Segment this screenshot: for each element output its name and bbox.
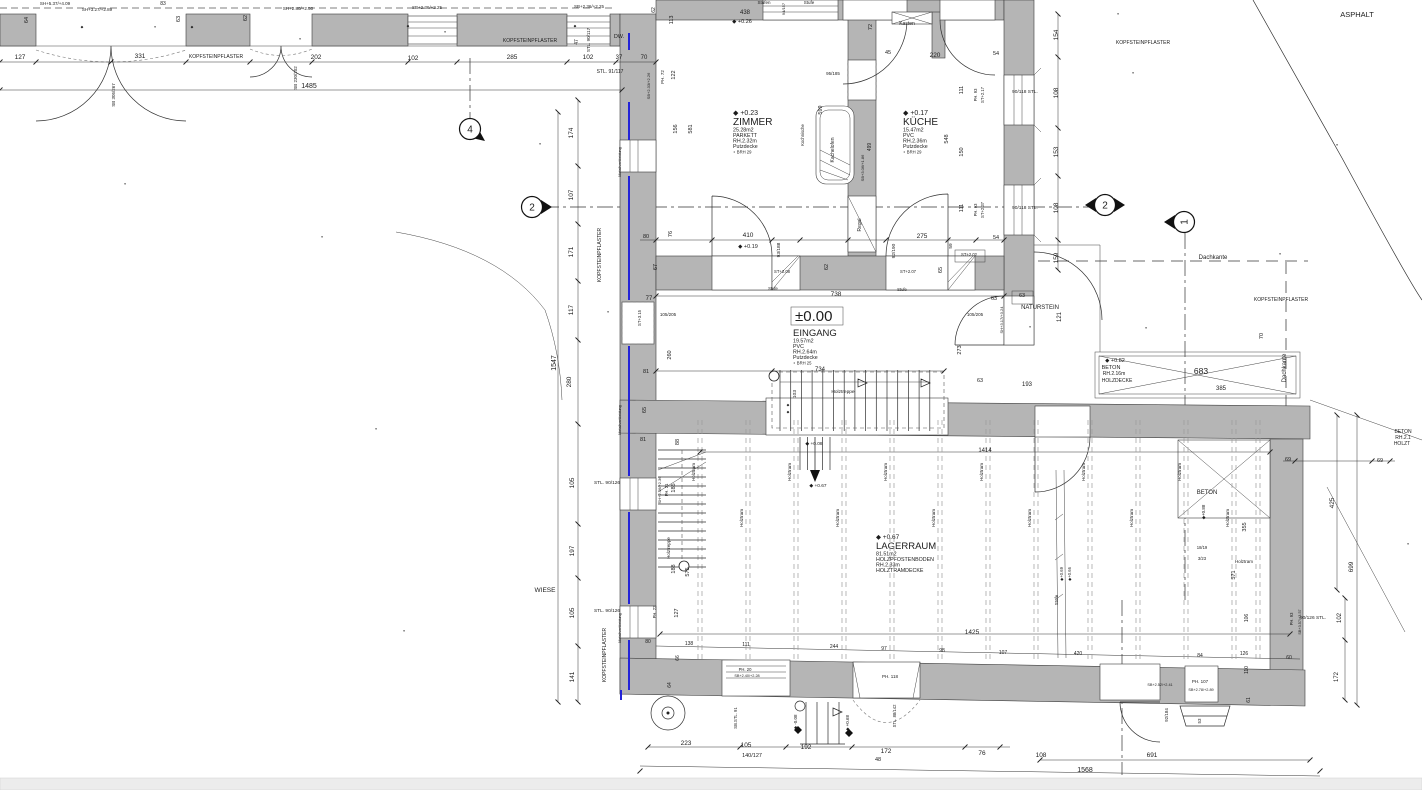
dim-label: 65	[938, 267, 944, 273]
dim-label: Stufe	[768, 286, 778, 291]
dim-label: NATURSTEIN	[1021, 305, 1059, 311]
dim-label: 47	[574, 39, 580, 45]
dim-label: ◆+0.66	[1067, 566, 1072, 580]
dim-label: 111	[959, 86, 965, 94]
holztram-beams: HolztramHolztramHolztramHolztramHolztram…	[691, 420, 1260, 662]
dim-label: 1414	[978, 448, 992, 454]
holztram-label: Holztram	[1177, 463, 1182, 481]
dim-label: PH. 72	[660, 70, 665, 84]
holztram-label: Holztram	[883, 463, 888, 481]
dim-label: ∘	[443, 29, 446, 35]
dim-label: 69	[1377, 458, 1383, 464]
dim-label: ◆ +0.26	[732, 19, 752, 25]
dim-label: 59	[948, 243, 954, 249]
dim-label: 581	[688, 124, 694, 133]
dim-label: 108	[1036, 752, 1047, 759]
lagerraum-level: ◆ +0.67	[876, 534, 900, 541]
dim-label: 92/190	[891, 243, 897, 258]
dim-label: 60	[1286, 655, 1292, 661]
dim-label: 83	[160, 1, 166, 7]
dim-label: 355	[1242, 522, 1248, 531]
dim-label: ∘	[1131, 70, 1134, 76]
dim-label: 122	[671, 70, 677, 79]
dim-label: 105	[569, 607, 576, 618]
dim-label: 599	[818, 105, 824, 114]
dim-label: KOPFSTEINPFLASTER	[602, 628, 608, 683]
dim-label: 159	[1053, 252, 1060, 263]
svg-text:HOLZTRAMDECKE: HOLZTRAMDECKE	[876, 568, 924, 574]
dim-label: 48	[875, 757, 881, 763]
dim-label: 111	[742, 642, 750, 648]
dim-label: 105/205	[967, 312, 984, 317]
eingang-title: EINGANG	[793, 328, 837, 339]
dim-label: SB 230/202	[293, 66, 298, 90]
dim-label: Kachelofen	[830, 137, 836, 162]
dim-label: 54	[993, 51, 999, 57]
dim-label: 1568	[1077, 767, 1093, 774]
dim-label: 1485	[301, 83, 317, 90]
dim-label: DW.	[614, 34, 625, 40]
holztram-label: Holztram	[979, 463, 984, 481]
dim-label: 105	[569, 477, 576, 488]
dim-label: KOPFSTEINPFLASTER	[597, 228, 603, 283]
dim-label: ◆	[81, 25, 85, 29]
dim-label: 102	[583, 54, 594, 61]
dim-label: STL. 91/117	[597, 69, 624, 75]
dim-label: 140/127	[742, 753, 762, 759]
floorplan-drawing: ◆ +0.23 ZIMMER 25.28m2 PARKETT RH.2.32m …	[0, 0, 1422, 790]
page-edge-strip	[0, 778, 1422, 790]
dim-label: ST+2.17	[980, 86, 985, 103]
dim-label: 81	[643, 369, 649, 375]
dim-label: 280	[566, 376, 573, 387]
dim-label: STL. 90/126	[594, 608, 620, 614]
dim-label: SB+3.06/+1.86	[860, 154, 865, 181]
dim-label: 571	[1231, 570, 1237, 579]
dim-label: ST+2.08	[774, 269, 791, 274]
dim-label: 94/157	[781, 2, 786, 15]
dim-label: 54	[993, 235, 999, 241]
site-lines	[0, 0, 1422, 775]
dim-label: 108	[1053, 87, 1060, 98]
dim-label: ∘	[153, 24, 156, 30]
dim-label: 683	[1194, 366, 1208, 376]
dim-label: 107	[999, 650, 1008, 656]
holztram-label: Holztram	[1225, 509, 1230, 527]
dim-label: 126	[1240, 651, 1249, 657]
dim-label: 575	[685, 567, 691, 576]
dim-label: 63	[176, 16, 182, 22]
dim-label: 220	[930, 52, 941, 59]
dim-label: PH. 93	[973, 203, 978, 216]
dim-label: 410	[743, 232, 754, 239]
dim-label: 188	[671, 564, 677, 573]
dim-label: 154	[1053, 29, 1060, 40]
dim-label: SB+2.40/+2.28	[734, 674, 759, 678]
dim-label: ASPHALT	[1340, 10, 1374, 19]
dim-label: 499	[867, 143, 873, 152]
dim-label: 127	[674, 608, 680, 617]
dim-label: Stufe	[804, 0, 815, 5]
holztram-label: Holztram	[1027, 509, 1032, 527]
dim-label: 63	[1019, 293, 1025, 299]
dim-label: KOPFSTEINPFLASTER	[503, 38, 558, 44]
dim-label: 738	[831, 291, 842, 298]
dim-label: ∘	[538, 141, 541, 147]
dim-label: SH+2.46/+2.36	[657, 476, 662, 504]
dim-label: ST+2.07	[900, 269, 917, 274]
dim-label: SB+2.36/+2.25	[574, 4, 605, 9]
dim-label: Metallverkleidung	[618, 405, 622, 435]
dim-label: 105/205	[660, 312, 677, 317]
dim-label: 90/118 STL.	[1012, 205, 1038, 211]
dim-label: 90/118 STL.	[1012, 89, 1038, 95]
holztram-label: Holztram	[691, 463, 696, 481]
section-marker-number: 2	[529, 203, 535, 214]
dim-label: ◆ -0.08	[793, 714, 798, 729]
dim-label: 185	[671, 483, 677, 492]
dim-label: 244	[830, 644, 839, 650]
dim-label: 93/188	[776, 242, 782, 257]
dim-label: 171	[568, 246, 575, 257]
dim-label: 121	[1057, 311, 1063, 322]
dim-label: 141	[569, 671, 576, 682]
dim-label: 127	[15, 54, 26, 61]
dim-label: 111	[959, 204, 965, 212]
floorplan-page: ◆ +0.23 ZIMMER 25.28m2 PARKETT RH.2.32m …	[0, 0, 1422, 790]
dim-label: PH. 22	[652, 605, 657, 618]
dim-label: Stufen	[757, 0, 771, 5]
middle-long-wall	[620, 400, 1310, 439]
dim-label: 95/185	[826, 71, 840, 76]
holztram-label: Holztram	[1129, 509, 1134, 527]
dim-label: SB+3.57/+3.57	[1298, 609, 1302, 634]
dim-label: 192	[801, 744, 812, 751]
kueche-level: ◆ +0.17	[903, 110, 928, 117]
dim-label: 76	[978, 750, 986, 757]
left-exterior-wall	[620, 14, 656, 694]
dim-label: 174	[568, 127, 575, 138]
dim-label: KOPFSTEINPFLASTER	[1116, 40, 1171, 46]
dim-label: Kochnische	[800, 124, 805, 146]
dim-label: 285	[507, 54, 518, 61]
dim-label: 67	[653, 264, 659, 270]
dim-label: ∘	[1144, 325, 1147, 331]
section-marker-number: 4	[467, 125, 473, 136]
dim-label: 80	[645, 639, 651, 645]
dim-label: PH. 118	[882, 674, 898, 679]
dim-label: ST+3.15	[637, 309, 642, 326]
svg-text:∘ BRH 29: ∘ BRH 29	[733, 150, 752, 155]
dim-label: 273	[957, 345, 963, 354]
dim-label: 45	[885, 50, 891, 56]
dim-label: 70	[1259, 333, 1265, 339]
dim-label: PH. 20	[739, 667, 752, 672]
dim-label: ∘	[1335, 142, 1338, 148]
dim-label: 734	[815, 367, 826, 373]
dim-label: 72	[868, 24, 874, 30]
dim-label: 107	[568, 189, 575, 200]
annotation-labels: ASPHALTKOPFSTEINPFLASTERKOPFSTEINPFLASTE…	[15, 0, 1412, 774]
dim-label: ◆+0.69	[1059, 566, 1064, 580]
dim-label: 70	[641, 55, 648, 61]
dim-label: ST+2.02	[961, 252, 978, 257]
zimmer-title: ZIMMER	[733, 117, 772, 128]
dim-label: 110	[1244, 666, 1250, 674]
dim-label: 62	[243, 15, 249, 21]
dim-label: PH. 107	[1192, 679, 1209, 684]
dim-label: ∘	[1278, 251, 1281, 257]
dim-label: SB+2.78/+2.89	[1188, 688, 1213, 692]
dim-label: 81	[640, 437, 646, 443]
kueche-title: KÜCHE	[903, 116, 938, 128]
dim-label: Stufe	[1054, 594, 1059, 605]
dim-label: ∘	[298, 36, 301, 42]
dim-label: 425	[1329, 497, 1336, 508]
dim-label: 193	[1022, 382, 1033, 388]
dim-label: Regal	[857, 218, 863, 231]
dim-label: 385	[1216, 386, 1227, 392]
dim-label: 331	[135, 53, 146, 60]
dim-label: ∘	[606, 309, 609, 315]
holztram-label: Holztram	[931, 509, 936, 527]
dim-label: STL. 88/142	[892, 704, 897, 727]
dim-label: ◆ +0.19	[738, 244, 758, 250]
dim-label: 108	[1053, 202, 1060, 213]
dim-label: ∘	[320, 234, 323, 240]
dim-label: 84	[1197, 653, 1203, 659]
dim-label: 150	[959, 147, 965, 156]
dim-label: PH. 21	[664, 483, 669, 496]
dim-label: 156	[673, 124, 679, 133]
dim-label: Dachkante	[1199, 255, 1228, 261]
dim-label: 172	[881, 748, 892, 755]
dim-label: STL. 90/126	[594, 480, 620, 486]
dim-label: 80	[643, 234, 649, 240]
dim-label: 275	[917, 233, 928, 240]
dim-label: ST+2.37	[980, 201, 985, 218]
dim-label: 98	[939, 648, 945, 654]
dim-label: 76	[668, 231, 674, 237]
dim-label: SB+2.33/+2.26	[646, 72, 651, 99]
dim-label: ◆ +0.67	[809, 483, 826, 489]
dim-label: Stufe	[897, 287, 907, 292]
section-marker-number: 1	[1180, 219, 1191, 225]
zimmer-level: ◆ +0.23	[733, 110, 758, 117]
dim-label: 113	[669, 16, 675, 25]
dim-label: 53	[1197, 718, 1202, 724]
eingang-level: ±0.00	[795, 308, 832, 325]
dim-label: ∘	[1116, 11, 1119, 17]
dim-label: 438	[740, 10, 751, 16]
dim-label: SB 305/267	[111, 83, 116, 107]
dim-label: 37	[616, 55, 623, 61]
dim-label: 66	[675, 655, 681, 661]
dim-label: 1425	[965, 629, 980, 636]
lagerraum-title: LAGERRAUM	[876, 541, 936, 552]
dim-label: 63	[977, 378, 983, 384]
dim-label: 65	[642, 407, 648, 413]
dim-label: PH. 93	[973, 88, 978, 101]
dim-label: ∘	[402, 628, 405, 634]
dim-label: 548	[944, 134, 950, 143]
dim-label: 1547	[551, 355, 558, 371]
dim-label: KOPFSTEINPFLASTER	[189, 54, 244, 60]
dim-label: 138	[685, 641, 694, 647]
dim-label: Holztreppe	[831, 389, 855, 395]
dim-label: 223	[681, 740, 692, 747]
section-marker-number: 2	[1102, 201, 1108, 212]
dim-label: ◆+0.88	[1201, 504, 1206, 519]
dim-label: HOLZT	[1394, 441, 1410, 447]
dim-label: KOPFSTEINPFLASTER	[1254, 297, 1309, 303]
dim-label: 63	[991, 296, 997, 302]
dim-label: 61	[1246, 697, 1252, 703]
dim-label: ◆ +0.82	[1105, 358, 1125, 364]
dim-label: SB+2.36/+2.25	[412, 5, 443, 10]
dim-label: ∘	[1406, 541, 1409, 547]
dim-label: SH+3.17/+3.24	[999, 306, 1004, 334]
dim-label: 172	[1334, 671, 1340, 682]
dim-label: 64	[667, 682, 673, 688]
walls	[0, 0, 1310, 706]
dim-label: RH.2.16m	[1103, 371, 1126, 377]
dim-label: 97	[881, 646, 887, 652]
dim-label: 62	[824, 264, 830, 270]
dim-label: PH. 93	[1289, 612, 1294, 625]
dim-label: ◆ +0.08	[805, 441, 822, 447]
dim-label: 420	[1074, 651, 1083, 657]
dim-label: 117	[568, 304, 575, 315]
door-swings	[36, 20, 1160, 742]
dim-label: 102	[1337, 612, 1343, 623]
dim-label: 103	[792, 390, 798, 398]
dim-label: ∘	[1028, 324, 1031, 330]
dim-label: BETON	[1197, 490, 1218, 496]
dim-label: 92/184	[1164, 708, 1169, 722]
dim-label: 699	[1348, 561, 1355, 572]
dim-label: SB.STL. 91	[733, 707, 738, 729]
dim-label: Dachkante	[1282, 353, 1288, 382]
dim-label: ∘	[123, 181, 126, 187]
dim-label: 153	[1053, 146, 1060, 157]
dim-label: WIESE	[535, 587, 557, 594]
dim-label: 106	[1244, 614, 1250, 623]
holztram-label: Holztram	[787, 463, 792, 481]
dim-label: 64	[24, 17, 30, 23]
dim-label: SB+2.52/+2.41	[1147, 683, 1172, 687]
stufe-edge	[1055, 470, 1066, 658]
holztram-label: Holztram	[739, 509, 744, 527]
dim-label: 691	[1147, 752, 1158, 759]
dim-label: SH+5.37/+4.09	[40, 1, 71, 6]
dim-label: HOLZDECKE	[1102, 378, 1133, 384]
dim-label: SH+2.80/+2.50	[283, 6, 314, 11]
dim-label: 197	[569, 545, 576, 556]
dim-label: 3/23	[1198, 556, 1207, 561]
dim-label: 69	[1285, 457, 1291, 463]
svg-text:∘ BRH 25: ∘ BRH 25	[793, 361, 812, 366]
dim-label: Kasten	[899, 21, 915, 27]
dim-label: ◆ +0.68	[845, 714, 850, 731]
dim-label: 105	[741, 742, 752, 749]
dim-label: STL. 90/117	[586, 27, 591, 52]
svg-text:∘ BRH 29: ∘ BRH 29	[903, 150, 922, 155]
dim-label: 62	[651, 7, 657, 13]
dim-label: 88	[675, 439, 681, 445]
holztram-label: Holztram	[835, 509, 840, 527]
dim-label: 18/19	[1197, 545, 1208, 550]
dim-label: 77	[646, 296, 653, 302]
dim-label: 260	[667, 350, 673, 359]
door-step	[1180, 706, 1230, 726]
dim-label: Metallverkleidung	[618, 613, 622, 643]
dim-label: 202	[311, 54, 322, 61]
right-exterior-wall	[1270, 439, 1303, 703]
holztram-label: Holztram	[1081, 463, 1086, 481]
dim-label: SH+3.27/+2.89	[82, 7, 113, 12]
dim-label: Metallverkleidung	[618, 147, 622, 177]
dim-label: Holztreppe	[666, 537, 671, 559]
dim-label: ∘	[374, 426, 377, 432]
dim-label: 90/126 STL.	[1300, 615, 1326, 621]
dim-label: Holztram	[1235, 559, 1253, 564]
